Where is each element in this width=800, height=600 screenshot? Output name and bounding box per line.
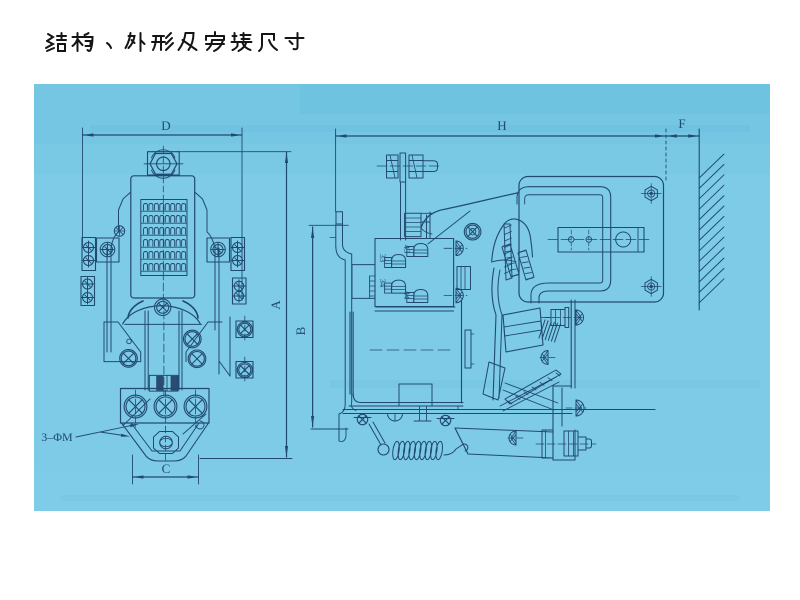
svg-text:44: 44 bbox=[402, 291, 412, 300]
svg-text:43: 43 bbox=[402, 245, 412, 254]
svg-text:C: C bbox=[162, 461, 171, 476]
svg-text:D: D bbox=[161, 118, 170, 133]
svg-text:A: A bbox=[268, 300, 283, 310]
svg-text:F: F bbox=[678, 116, 685, 131]
svg-text:33: 33 bbox=[378, 254, 388, 263]
svg-text:3–ΦM: 3–ΦM bbox=[41, 430, 73, 444]
svg-text:H: H bbox=[497, 118, 506, 133]
svg-text:34: 34 bbox=[378, 279, 388, 288]
svg-text:B: B bbox=[293, 326, 308, 335]
